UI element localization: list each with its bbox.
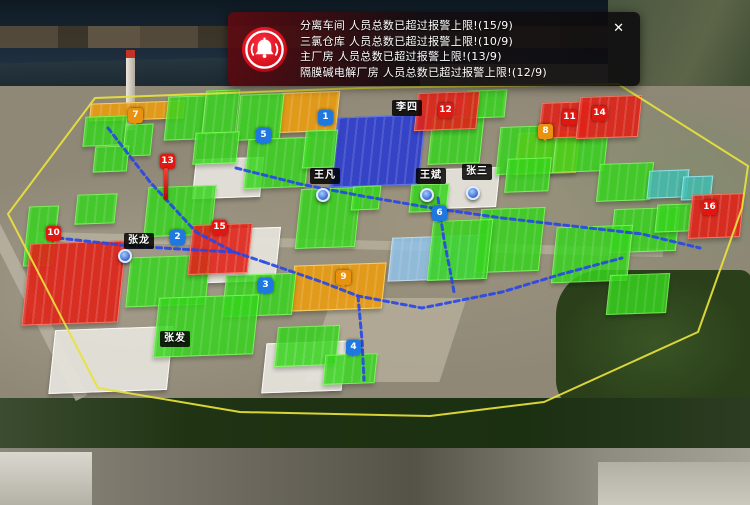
plant-3d-map[interactable]: 12345678910111213141516李四王凡王斌张三张龙张发 分离车间… xyxy=(0,0,750,505)
alarm-marker-15[interactable]: 15 xyxy=(212,220,227,235)
alarm-marker-16[interactable]: 16 xyxy=(702,200,717,215)
alarm-marker-12[interactable]: 12 xyxy=(438,103,453,118)
person-pin[interactable] xyxy=(420,188,434,202)
zone-marker-5[interactable]: 5 xyxy=(256,128,271,143)
alarm-marker-10[interactable]: 10 xyxy=(46,226,61,241)
zone-marker-4[interactable]: 4 xyxy=(346,340,361,355)
person-label[interactable]: 李四 xyxy=(392,100,422,116)
alarm-marker-13[interactable]: 13 xyxy=(160,154,175,169)
person-pin[interactable] xyxy=(164,168,168,200)
zone-marker-2[interactable]: 2 xyxy=(170,230,185,245)
alert-message: 主厂房 人员总数已超过报警上限!(13/9) xyxy=(300,49,640,65)
zone-marker-9[interactable]: 9 xyxy=(336,270,351,285)
alert-panel: 分离车间 人员总数已超过报警上限!(15/9)三氯仓库 人员总数已超过报警上限!… xyxy=(228,12,640,86)
alert-message: 三氯仓库 人员总数已超过报警上限!(10/9) xyxy=(300,34,640,50)
zone-marker-8[interactable]: 8 xyxy=(538,124,553,139)
alarm-marker-11[interactable]: 11 xyxy=(562,110,577,125)
alarm-marker-14[interactable]: 14 xyxy=(592,106,607,121)
zone-marker-3[interactable]: 3 xyxy=(258,278,273,293)
person-label[interactable]: 张发 xyxy=(160,331,190,347)
alert-message: 分离车间 人员总数已超过报警上限!(15/9) xyxy=(300,18,640,34)
zone-marker-1[interactable]: 1 xyxy=(318,110,333,125)
zone-marker-6[interactable]: 6 xyxy=(432,206,447,221)
alarm-bell-icon xyxy=(241,26,288,73)
person-pin[interactable] xyxy=(118,249,132,263)
person-label[interactable]: 张龙 xyxy=(124,233,154,249)
alert-message: 隔膜碱电解厂房 人员总数已超过报警上限!(12/9) xyxy=(300,65,640,81)
person-label[interactable]: 张三 xyxy=(462,164,492,180)
person-pin[interactable] xyxy=(316,188,330,202)
person-pin[interactable] xyxy=(466,186,480,200)
alert-close-button[interactable]: ✕ xyxy=(611,20,626,37)
alert-message-list: 分离车间 人员总数已超过报警上限!(15/9)三氯仓库 人员总数已超过报警上限!… xyxy=(300,18,640,80)
zone-marker-7[interactable]: 7 xyxy=(128,108,143,123)
person-label[interactable]: 王斌 xyxy=(416,168,446,184)
person-label[interactable]: 王凡 xyxy=(310,168,340,184)
